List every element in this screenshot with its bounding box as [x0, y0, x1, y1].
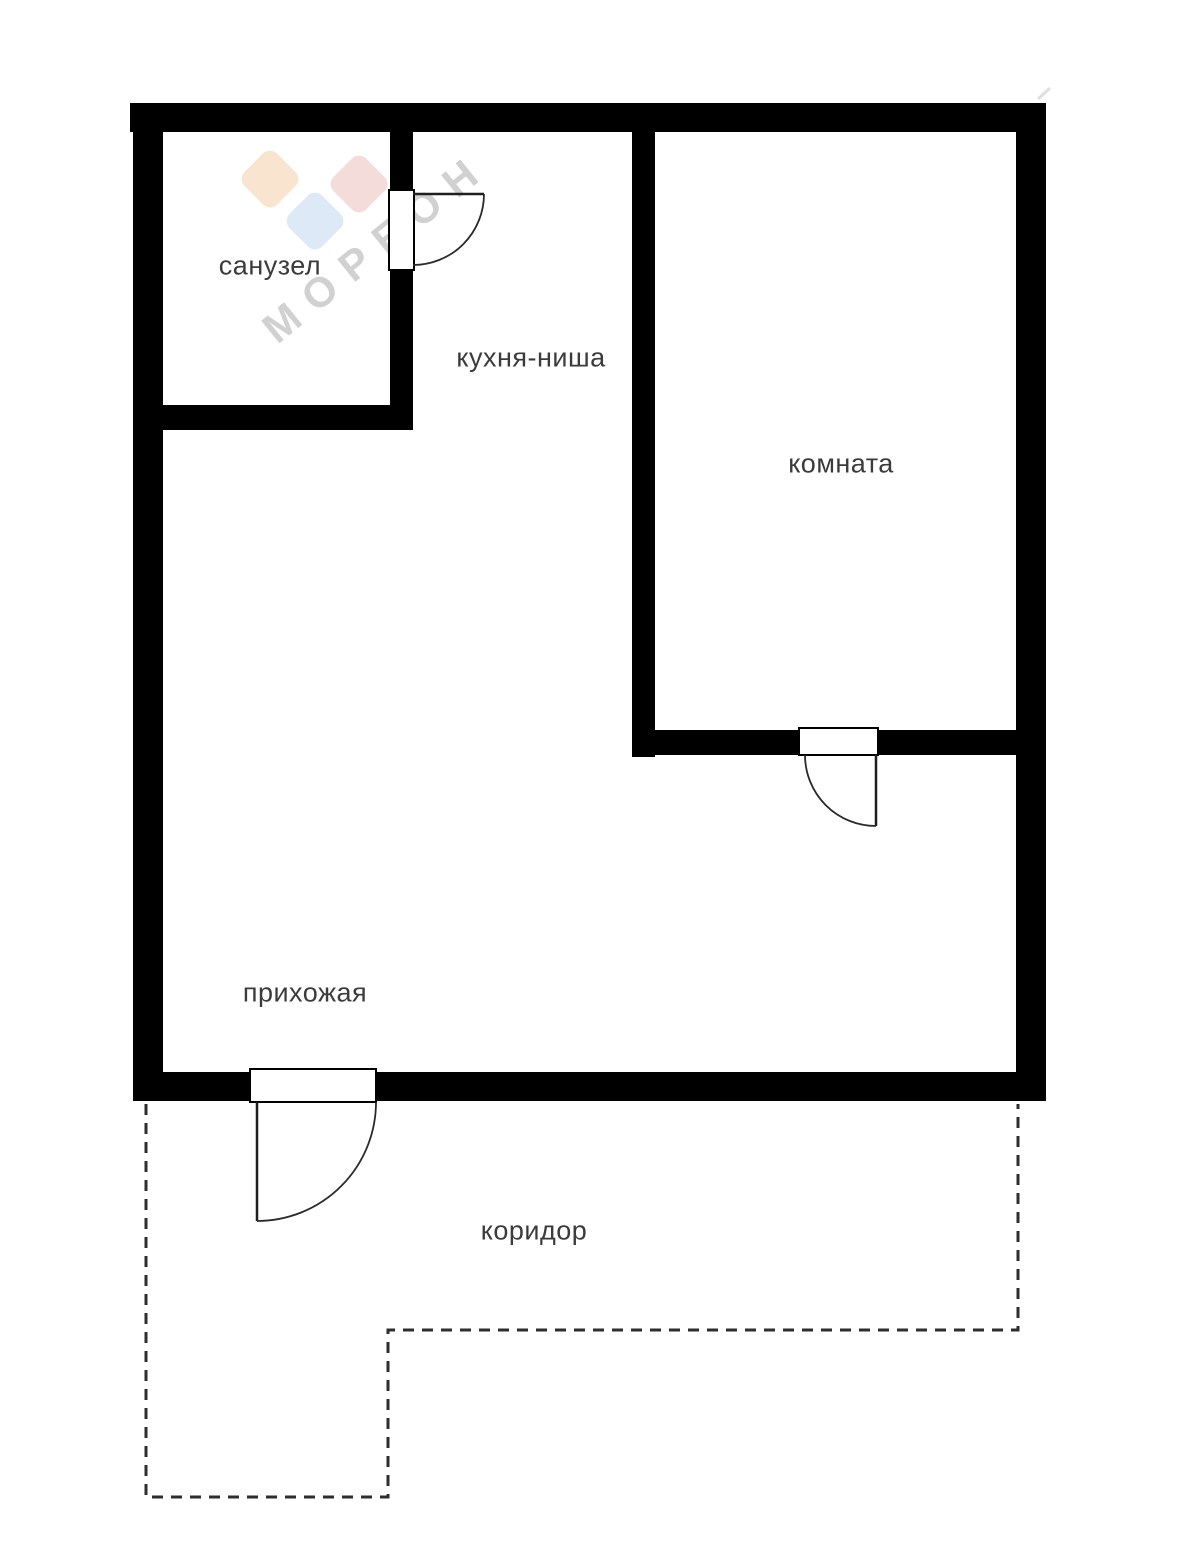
bathroom-door	[389, 190, 414, 270]
floor-plan: МОРЕОН санузел кухня-ниша комната прих	[0, 0, 1200, 1549]
room-label-hallway: прихожая	[243, 978, 367, 1009]
entrance-door-swing-arc	[257, 1102, 376, 1221]
floor-plan-drawing	[0, 0, 1200, 1549]
outer-wall-top	[130, 103, 1046, 132]
outer-wall-left	[133, 103, 163, 1101]
corridor-dashed-outline	[146, 1104, 1018, 1497]
entrance-door	[250, 1069, 376, 1102]
outer-wall-right	[1016, 103, 1046, 1101]
room-label-kitchen-niche: кухня-ниша	[456, 343, 605, 374]
bathroom-wall-bottom	[140, 405, 413, 430]
room-door	[799, 728, 878, 755]
room-label-living-room: комната	[788, 449, 894, 480]
bathroom-door-swing-arc	[413, 194, 484, 265]
room-wall-left	[632, 103, 655, 757]
room-door-swing-arc	[805, 755, 876, 826]
room-label-corridor: коридор	[481, 1216, 588, 1247]
room-label-bathroom: санузел	[219, 251, 321, 282]
